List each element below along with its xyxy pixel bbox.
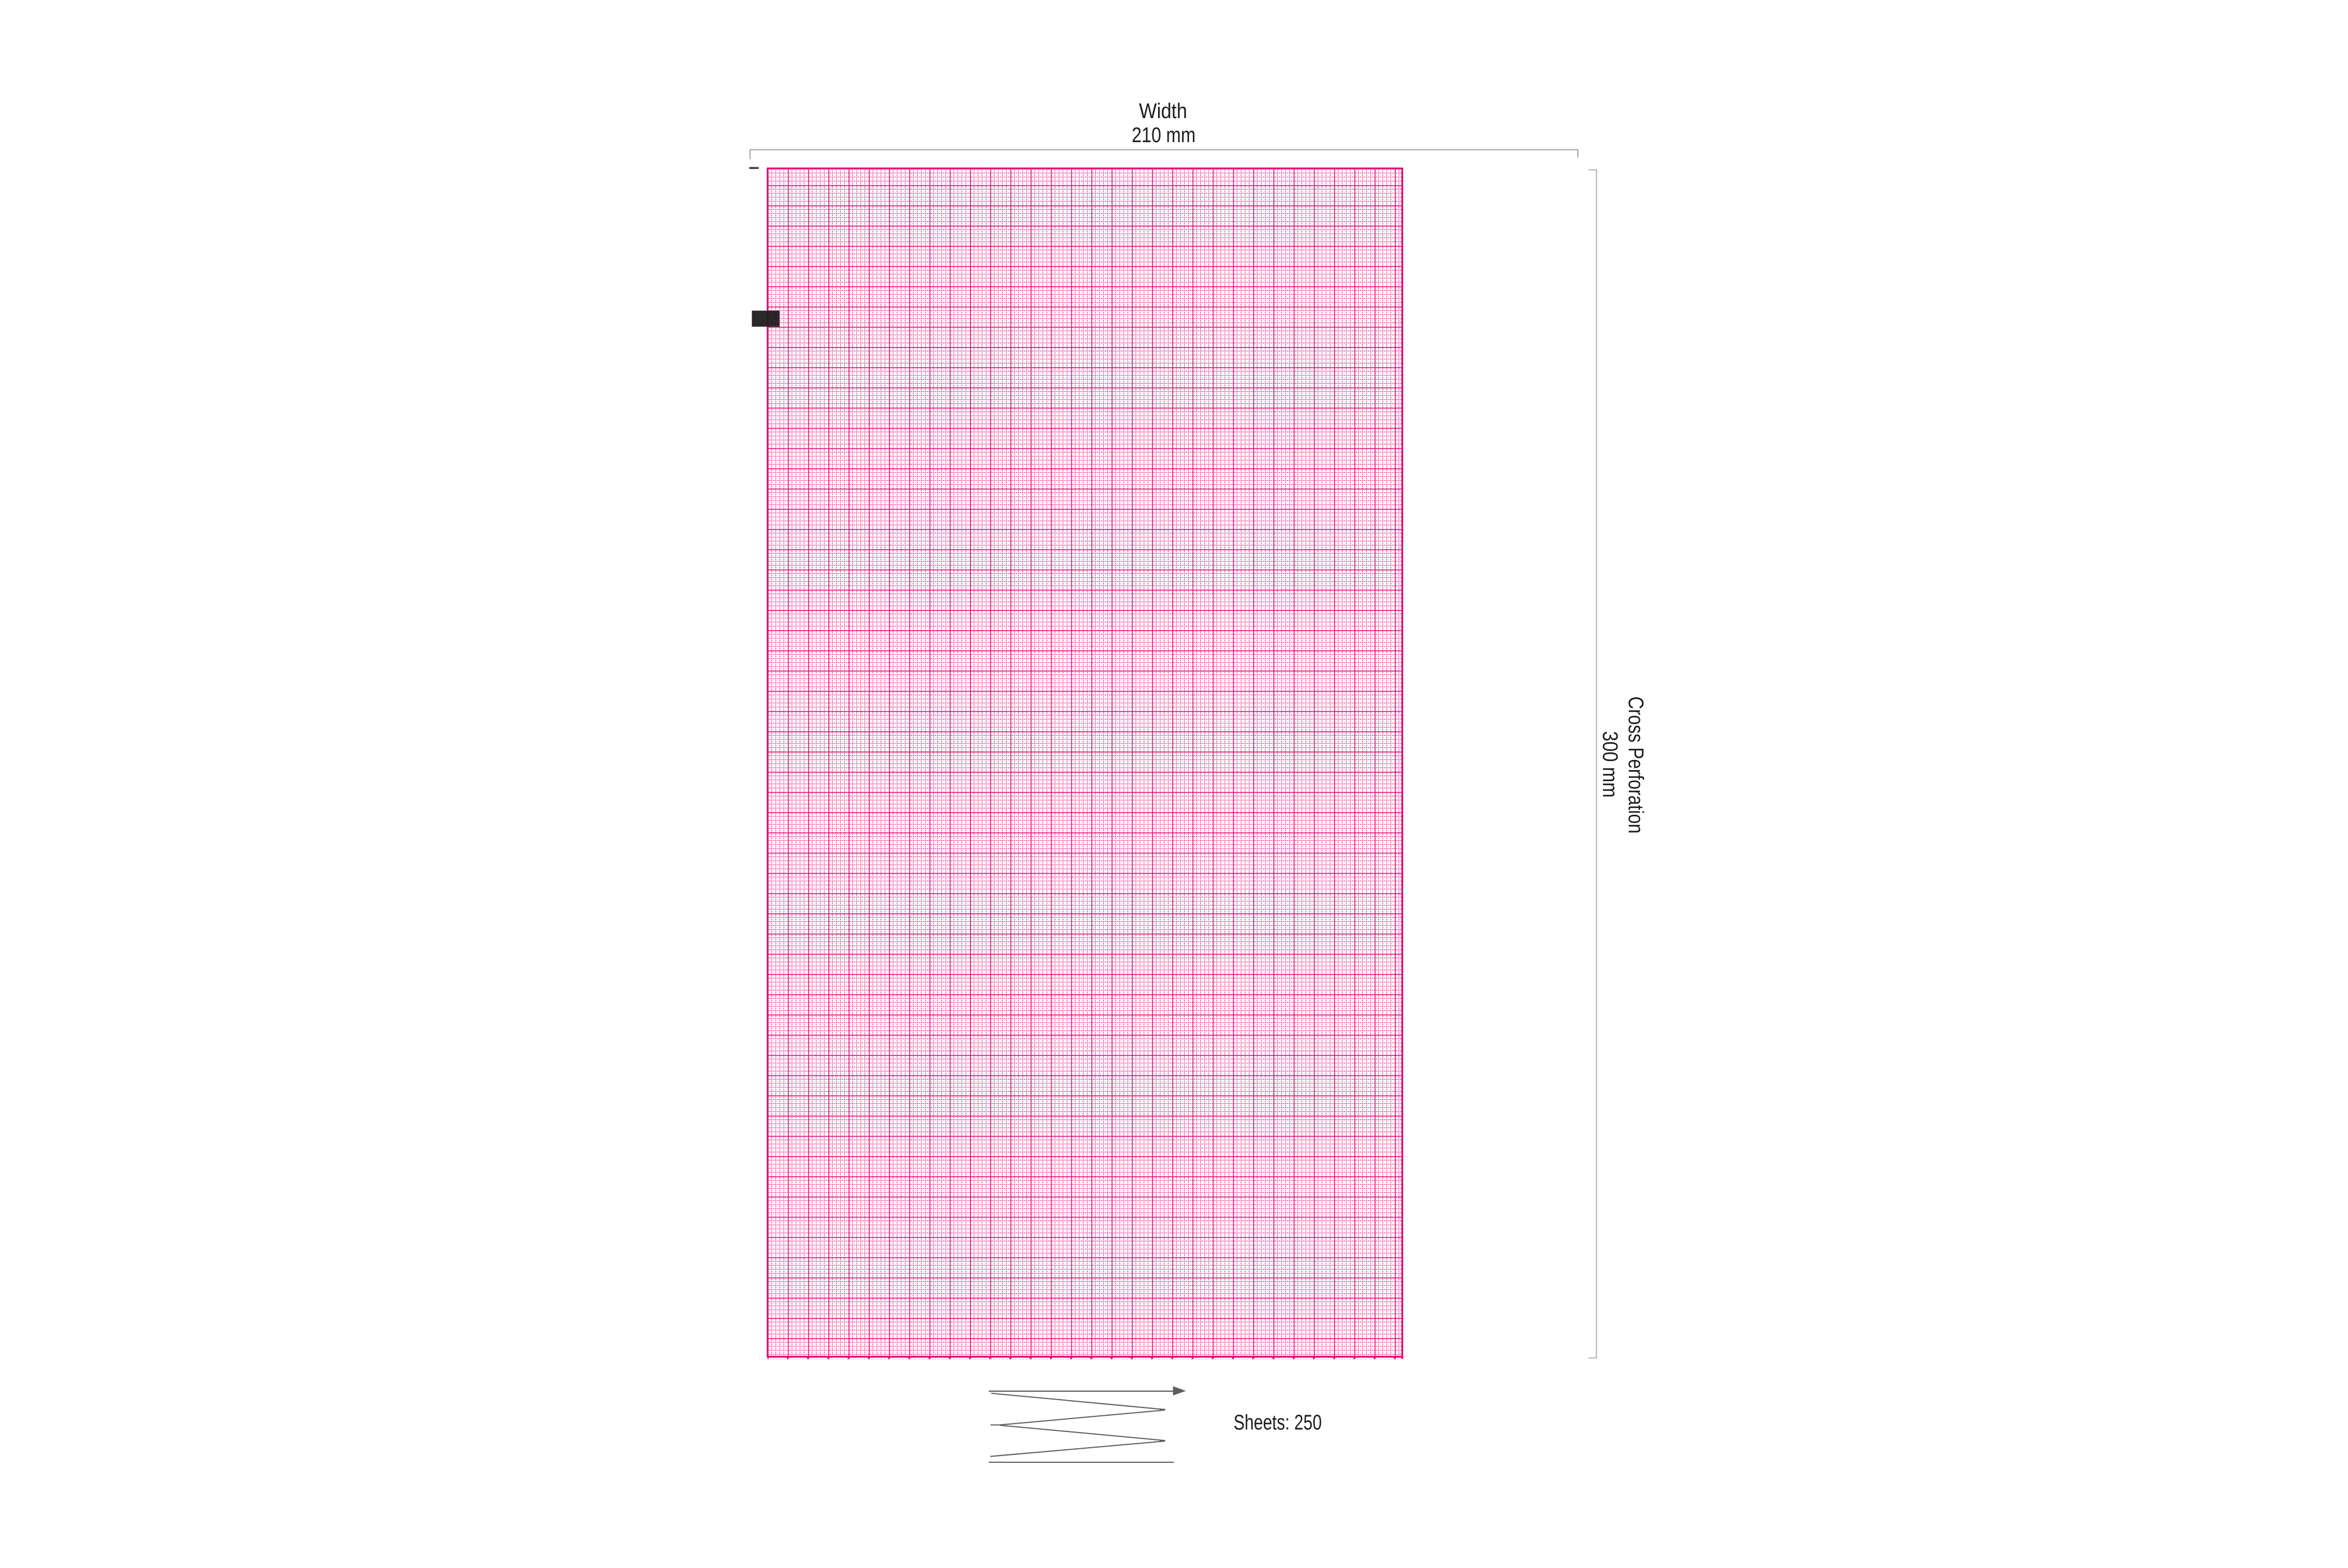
svg-text:210 mm: 210 mm	[1132, 124, 1196, 147]
svg-text:300 mm: 300 mm	[1598, 731, 1621, 798]
svg-text:Width: Width	[1139, 100, 1187, 123]
svg-text:Cross Perforation: Cross Perforation	[1624, 697, 1647, 834]
svg-text:Sheets: 250: Sheets: 250	[1234, 1411, 1322, 1435]
